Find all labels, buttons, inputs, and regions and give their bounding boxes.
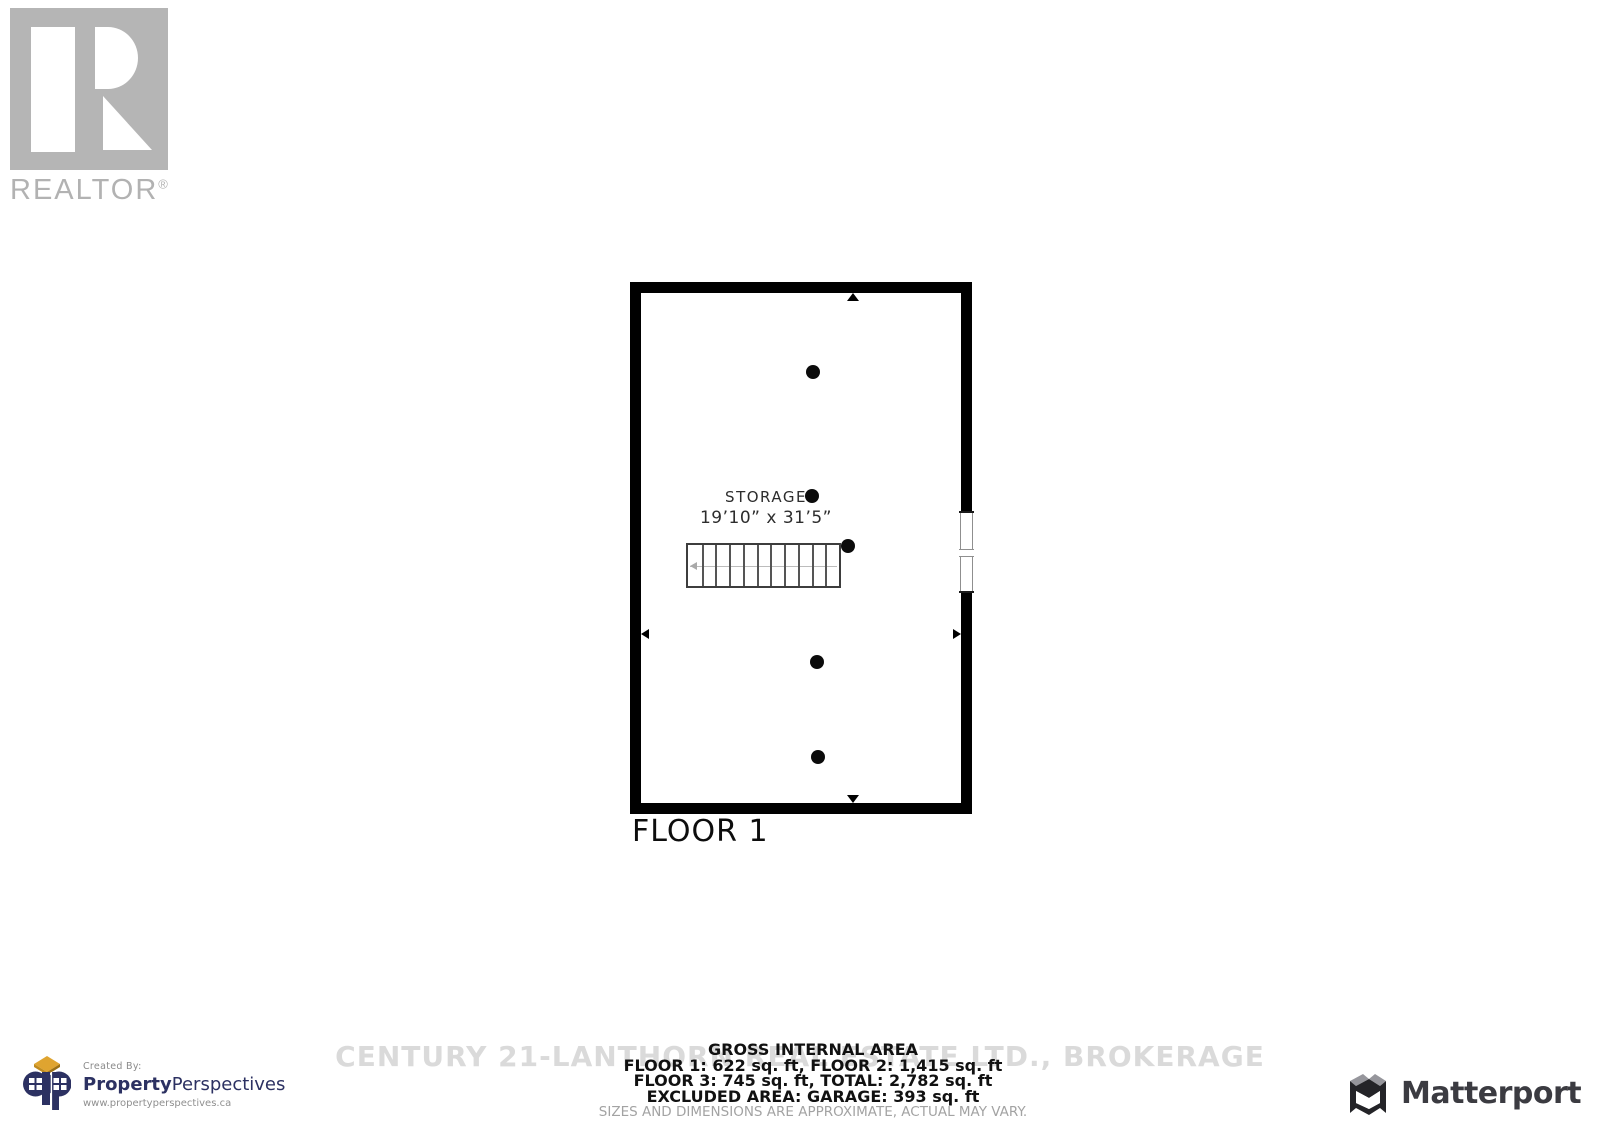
column-dot <box>811 750 825 764</box>
property-perspectives-url: www.propertyperspectives.ca <box>83 1098 285 1109</box>
area-line-3: EXCLUDED AREA: GARAGE: 393 sq. ft <box>599 1089 1027 1105</box>
brand-name-bold: Property <box>83 1074 172 1095</box>
stair-tread-line <box>812 545 814 586</box>
stair-tread-line <box>825 545 827 586</box>
property-perspectives-name: PropertyPerspectives <box>83 1074 285 1095</box>
room-name: STORAGE <box>686 488 846 506</box>
column-dot <box>841 539 855 553</box>
realtor-r-icon <box>10 8 168 170</box>
property-perspectives-credit: Created By: PropertyPerspectives www.pro… <box>23 1055 285 1111</box>
registered-trademark-symbol: ® <box>158 176 170 191</box>
stair-tread-line <box>770 545 772 586</box>
stair-direction-arrow-icon <box>690 562 697 570</box>
floorplan: STORAGE 19’10” x 31’5” <box>630 282 972 814</box>
realtor-word-text: REALTOR <box>10 174 158 206</box>
wall-arrow-down-icon <box>847 795 859 803</box>
brand-name-rest: Perspectives <box>172 1074 286 1095</box>
stair-centerline <box>690 566 837 567</box>
property-perspectives-text: Created By: PropertyPerspectives www.pro… <box>83 1055 285 1109</box>
matterport-wordmark: Matterport <box>1401 1076 1581 1111</box>
floorplan-interior: STORAGE 19’10” x 31’5” <box>641 293 961 803</box>
size-disclaimer: SIZES AND DIMENSIONS ARE APPROXIMATE, AC… <box>599 1105 1027 1121</box>
stair-tread-line <box>702 545 704 586</box>
stair-tread-line <box>757 545 759 586</box>
wall-arrow-up-icon <box>847 293 859 301</box>
created-by-label: Created By: <box>83 1061 285 1072</box>
staircase <box>686 543 841 588</box>
stair-tread-line <box>743 545 745 586</box>
wall-arrow-right-icon <box>953 629 961 639</box>
room-dimensions: 19’10” x 31’5” <box>686 508 846 528</box>
stair-tread-line <box>784 545 786 586</box>
stair-tread-line <box>798 545 800 586</box>
window-mullion <box>959 549 974 557</box>
window <box>959 511 974 593</box>
matterport-logo-icon <box>1347 1071 1389 1115</box>
realtor-wordmark: REALTOR® <box>10 174 200 207</box>
stair-tread-line <box>715 545 717 586</box>
column-dot <box>810 655 824 669</box>
property-perspectives-logo-icon <box>23 1055 71 1111</box>
gross-internal-area-block: GROSS INTERNAL AREA FLOOR 1: 622 sq. ft,… <box>599 1042 1027 1121</box>
column-dot <box>805 489 819 503</box>
page: REALTOR® STORAGE 19’10” x 31’5” FLOOR 1 … <box>0 0 1600 1132</box>
realtor-logo-icon <box>10 8 168 174</box>
floor-label: FLOOR 1 <box>632 814 769 849</box>
room-label: STORAGE 19’10” x 31’5” <box>686 488 846 528</box>
matterport-credit: Matterport <box>1347 1071 1581 1115</box>
stair-tread-line <box>729 545 731 586</box>
wall-arrow-left-icon <box>641 629 649 639</box>
column-dot <box>806 365 820 379</box>
